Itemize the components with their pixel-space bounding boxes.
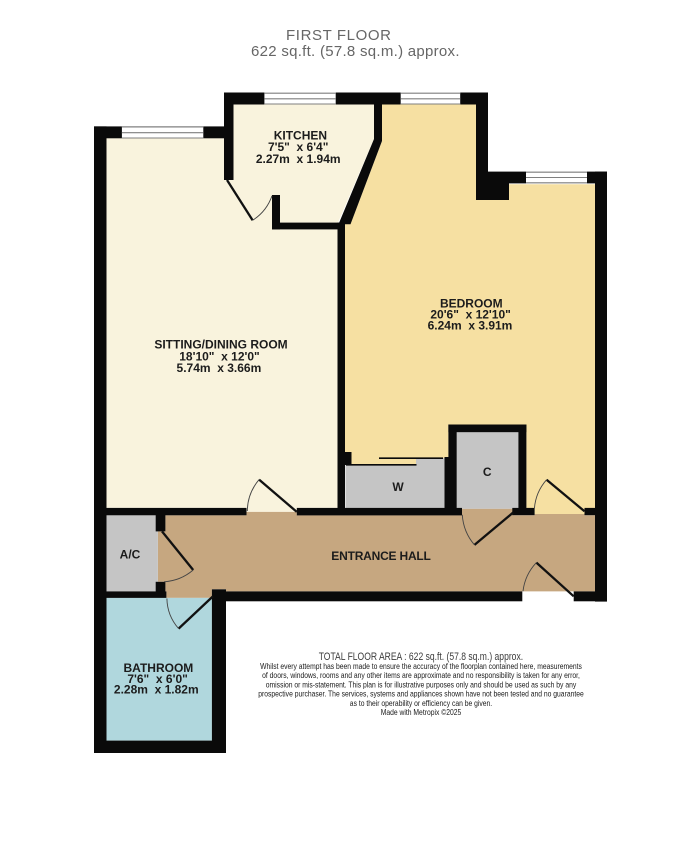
- svg-text:2.28m x 1.82m: 2.28m x 1.82m: [114, 683, 199, 697]
- svg-text:622 sq.ft. (57.8 sq.m.) approx: 622 sq.ft. (57.8 sq.m.) approx.: [251, 43, 460, 60]
- svg-text:of doors, windows, rooms and a: of doors, windows, rooms and any other i…: [262, 671, 580, 681]
- svg-text:ENTRANCE HALL: ENTRANCE HALL: [331, 549, 430, 563]
- svg-text:W: W: [392, 480, 404, 494]
- svg-text:6.24m x 3.91m: 6.24m x 3.91m: [428, 319, 513, 333]
- svg-text:A/C: A/C: [120, 547, 141, 561]
- svg-text:FIRST FLOOR: FIRST FLOOR: [286, 27, 392, 44]
- svg-text:5.74m x 3.66m: 5.74m x 3.66m: [177, 361, 262, 375]
- svg-text:2.27m x 1.94m: 2.27m x 1.94m: [256, 152, 341, 166]
- svg-text:C: C: [483, 465, 492, 479]
- svg-text:as to their operability or eff: as to their operability or efficiency ca…: [350, 698, 492, 708]
- svg-text:Made with Metropix ©2025: Made with Metropix ©2025: [381, 708, 462, 718]
- svg-text:prospective purchaser. The ser: prospective purchaser. The services, sys…: [258, 689, 584, 699]
- svg-text:Whilst every attempt has been: Whilst every attempt has been made to en…: [260, 662, 582, 672]
- svg-text:omission or mis-statement. Thi: omission or mis-statement. This plan is …: [266, 680, 577, 690]
